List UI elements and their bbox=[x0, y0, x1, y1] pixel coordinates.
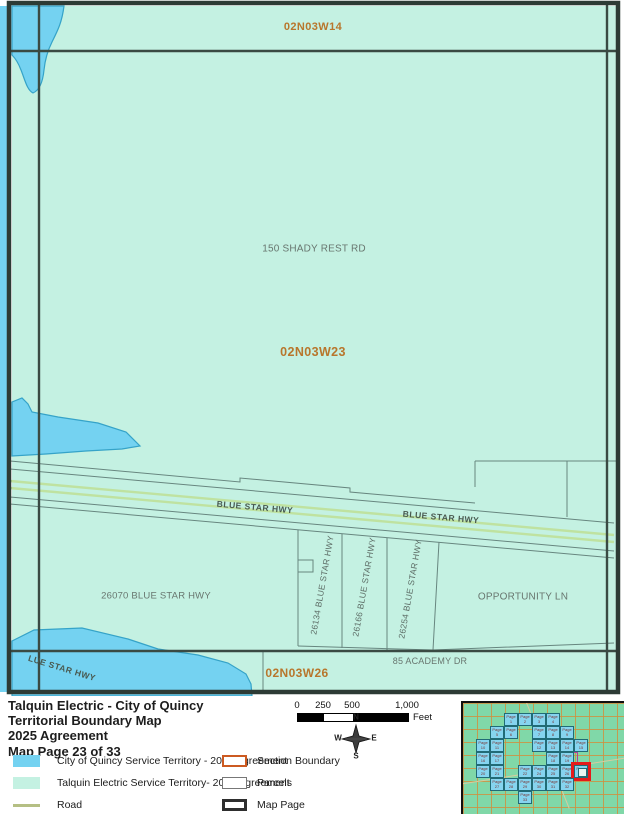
legend-item: City of Quincy Service Territory - 2025 … bbox=[13, 753, 223, 769]
map-title-block: Talquin Electric - City of Quincy Territ… bbox=[8, 698, 204, 759]
map-label-section: 02N03W23 bbox=[280, 345, 346, 359]
inset-current-page-marker bbox=[578, 768, 587, 777]
legend-box-swatch bbox=[222, 755, 247, 767]
inset-page-cell[interactable]: Page 10 bbox=[476, 739, 490, 752]
legend-item: Section Boundary bbox=[222, 753, 382, 769]
legend-item: Road bbox=[13, 797, 223, 813]
inset-page-cell[interactable]: Page 24 bbox=[532, 765, 546, 778]
scale-tick: 1,000 bbox=[395, 700, 419, 711]
compass-e-label: E bbox=[371, 734, 376, 743]
map-label-address: 85 ACADEMY DR bbox=[393, 656, 467, 666]
scale-unit-label: Feet bbox=[413, 712, 432, 723]
inset-page-cell[interactable]: Page 22 bbox=[518, 765, 532, 778]
inset-page-cell[interactable]: Page 16 bbox=[476, 752, 490, 765]
inset-page-cell[interactable]: Page 1 bbox=[504, 713, 518, 726]
map-label-section: 02N03W14 bbox=[284, 21, 342, 33]
map-canvas[interactable]: 02N03W1402N03W2302N03W26150 SHADY REST R… bbox=[0, 0, 624, 696]
inset-page-cell[interactable]: Page 2 bbox=[518, 713, 532, 726]
inset-page-cell[interactable]: Page 13 bbox=[546, 739, 560, 752]
legend-right-column: Section BoundaryParcelsMap Page bbox=[222, 753, 382, 814]
map-label-address: OPPORTUNITY LN bbox=[478, 592, 568, 603]
scale-tick: 500 bbox=[344, 700, 360, 711]
inset-page-cell[interactable]: Page 11 bbox=[490, 739, 504, 752]
map-label-address: 26070 BLUE STAR HWY bbox=[101, 591, 211, 602]
map-label-address: 150 SHADY REST RD bbox=[262, 244, 366, 255]
legend-box-swatch bbox=[222, 799, 247, 811]
inset-page-cell[interactable]: Page 33 bbox=[518, 791, 532, 804]
inset-current-page-highlight bbox=[571, 762, 591, 781]
inset-page-cell[interactable]: Page 28 bbox=[504, 778, 518, 791]
overview-inset-map[interactable]: Page 1Page 2Page 3Page 4Page 5Page 6Page… bbox=[461, 701, 624, 814]
title-line-3: 2025 Agreement bbox=[8, 728, 204, 743]
inset-page-cell[interactable]: Page 4 bbox=[546, 713, 560, 726]
inset-page-cell[interactable]: Page 3 bbox=[532, 713, 546, 726]
inset-page-cell[interactable]: Page 32 bbox=[560, 778, 574, 791]
inset-page-cell[interactable]: Page 17 bbox=[490, 752, 504, 765]
inset-page-cell[interactable]: Page 20 bbox=[476, 765, 490, 778]
legend-label: Section Boundary bbox=[257, 755, 340, 767]
inset-page-cell[interactable]: Page 12 bbox=[532, 739, 546, 752]
footer: Talquin Electric - City of Quincy Territ… bbox=[0, 696, 624, 814]
inset-page-cell[interactable]: Page 27 bbox=[490, 778, 504, 791]
map-label-section: 02N03W26 bbox=[265, 666, 328, 680]
map-document-page: 02N03W1402N03W2302N03W26150 SHADY REST R… bbox=[0, 0, 624, 814]
scale-segment bbox=[298, 714, 324, 721]
legend-label: Road bbox=[57, 799, 82, 811]
legend-swatch bbox=[13, 755, 40, 767]
inset-page-cell[interactable]: Page 31 bbox=[546, 778, 560, 791]
scale-tick: 0 bbox=[294, 700, 299, 711]
inset-page-cell[interactable]: Page 9 bbox=[560, 726, 574, 739]
legend-item: Map Page bbox=[222, 797, 382, 813]
inset-page-cell[interactable]: Page 21 bbox=[490, 765, 504, 778]
legend-label: Parcels bbox=[257, 777, 292, 789]
inset-page-cell[interactable]: Page 5 bbox=[490, 726, 504, 739]
legend-swatch bbox=[13, 777, 40, 789]
inset-page-cell[interactable]: Page 14 bbox=[560, 739, 574, 752]
inset-page-cell[interactable]: Page 6 bbox=[504, 726, 518, 739]
scale-tick: 250 bbox=[315, 700, 331, 711]
inset-page-cell[interactable]: Page 18 bbox=[546, 752, 560, 765]
inset-page-cell[interactable]: Page 8 bbox=[546, 726, 560, 739]
inset-page-cell[interactable]: Page 25 bbox=[546, 765, 560, 778]
compass-w-label: W bbox=[334, 734, 342, 743]
inset-page-cell[interactable]: Page 15 bbox=[574, 739, 588, 752]
inset-page-cell[interactable]: Page 7 bbox=[532, 726, 546, 739]
compass-n-label: N bbox=[353, 713, 359, 722]
legend-left-column: City of Quincy Service Territory - 2025 … bbox=[13, 753, 223, 814]
inset-page-cell[interactable]: Page 30 bbox=[532, 778, 546, 791]
title-line-1: Talquin Electric - City of Quincy bbox=[8, 698, 204, 713]
legend-label: Map Page bbox=[257, 799, 305, 811]
legend-item: Parcels bbox=[222, 775, 382, 791]
inset-page-cell[interactable]: Page 29 bbox=[518, 778, 532, 791]
legend-item: Talquin Electric Service Territory- 2025… bbox=[13, 775, 223, 791]
legend-swatch bbox=[13, 804, 40, 807]
legend-box-swatch bbox=[222, 777, 247, 789]
title-line-2: Territorial Boundary Map bbox=[8, 713, 204, 728]
